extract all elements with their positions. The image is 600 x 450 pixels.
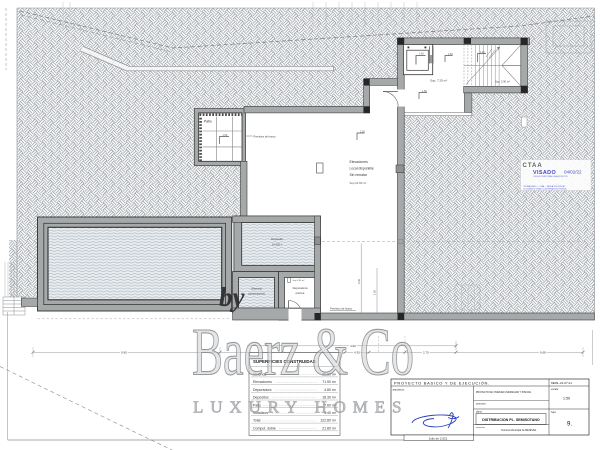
svg-text:1.50: 1.50 [422, 90, 427, 93]
svg-text:CTAA: CTAA [523, 163, 543, 169]
svg-text:1.50: 1.50 [360, 130, 365, 133]
svg-text:8E09–21.07.21: 8E09–21.07.21 [551, 381, 572, 385]
svg-text:compensacion): compensacion) [248, 293, 265, 296]
svg-text:Sup. 7.25 m²: Sup. 7.25 m² [430, 79, 447, 83]
svg-text:Depuradora: Depuradora [293, 286, 308, 290]
svg-text:Prevision de hueco: Prevision de hueco [330, 306, 353, 310]
svg-text:(Deposito: (Deposito [251, 288, 262, 291]
svg-text:COLEGIO TERRITORIAL DE ARQUITE: COLEGIO TERRITORIAL DE ARQUITECTOS [533, 175, 568, 178]
svg-text:Elevaciones: Elevaciones [350, 160, 369, 164]
svg-text:by: by [219, 282, 246, 312]
svg-text:DOCUMENTO VISADO CON FIRMA ELE: DOCUMENTO VISADO CON FIRMA ELECTRONICA [524, 188, 568, 191]
svg-text:Julio de 2.021: Julio de 2.021 [429, 436, 448, 440]
svg-text:NORMALIZADO — CTAA — VALIDACIO: NORMALIZADO — CTAA — VALIDACION DIGITAL [524, 185, 565, 188]
svg-text:Prevision de hueco: Prevision de hueco [254, 134, 277, 138]
svg-text:9.: 9. [567, 422, 572, 428]
svg-text:Sup 61.80 m²: Sup 61.80 m² [350, 181, 367, 185]
svg-text:plano:: plano: [476, 411, 483, 414]
svg-text:promotor:: promotor: [476, 403, 487, 406]
svg-text:situación:: situación: [476, 426, 486, 429]
svg-text:PROYECTO DE VIVIENDA UNIFAM: PROYECTO DE VIVIENDA UNIFAMILIAR Y PISCI… [476, 391, 532, 394]
svg-text:1:50: 1:50 [563, 397, 570, 401]
svg-text:1.20: 1.20 [480, 52, 485, 54]
svg-text:9.90: 9.90 [121, 350, 127, 354]
svg-text:DISTRIBUCION PL. SEMISOTANO: DISTRIBUCION PL. SEMISOTANO [482, 418, 540, 422]
svg-text:1.50: 1.50 [223, 134, 228, 137]
svg-text:LUXURY HOMES: LUXURY HOMES [193, 398, 409, 417]
svg-text:15.000 L: 15.000 L [272, 243, 283, 247]
svg-text:Termino Municipal de BENISSA.: Termino Municipal de BENISSA. [501, 429, 537, 432]
svg-text:Local disponible: Local disponible [350, 167, 374, 171]
svg-text:piscina: piscina [296, 291, 305, 295]
svg-text:escala:: escala: [551, 388, 559, 391]
svg-text:Baerz & Co: Baerz & Co [192, 314, 414, 390]
svg-text:Comput. doble: Comput. doble [253, 426, 276, 430]
svg-text:Deposito: Deposito [271, 237, 283, 241]
svg-text:9.68: 9.68 [540, 350, 546, 354]
svg-text:122.80 m²: 122.80 m² [320, 419, 337, 423]
svg-text:Sup. 2.90 m²: Sup. 2.90 m² [495, 80, 510, 84]
svg-text:1.50: 1.50 [448, 53, 453, 56]
svg-text:21.80 m²: 21.80 m² [322, 426, 337, 430]
svg-text:Patio: Patio [204, 120, 212, 124]
svg-text:Total: Total [253, 419, 261, 423]
svg-text:Sup 3.95 m²: Sup 3.95 m² [293, 279, 305, 282]
svg-text:hoja:: hoja: [551, 411, 557, 414]
svg-text:1.40: 1.40 [419, 53, 424, 56]
svg-text:04/02/22: 04/02/22 [564, 170, 582, 175]
svg-text:4.30: 4.30 [357, 278, 361, 284]
svg-text:2.75: 2.75 [423, 350, 429, 354]
svg-text:Sin rematar: Sin rematar [350, 173, 368, 177]
svg-text:1.50: 1.50 [373, 289, 377, 295]
